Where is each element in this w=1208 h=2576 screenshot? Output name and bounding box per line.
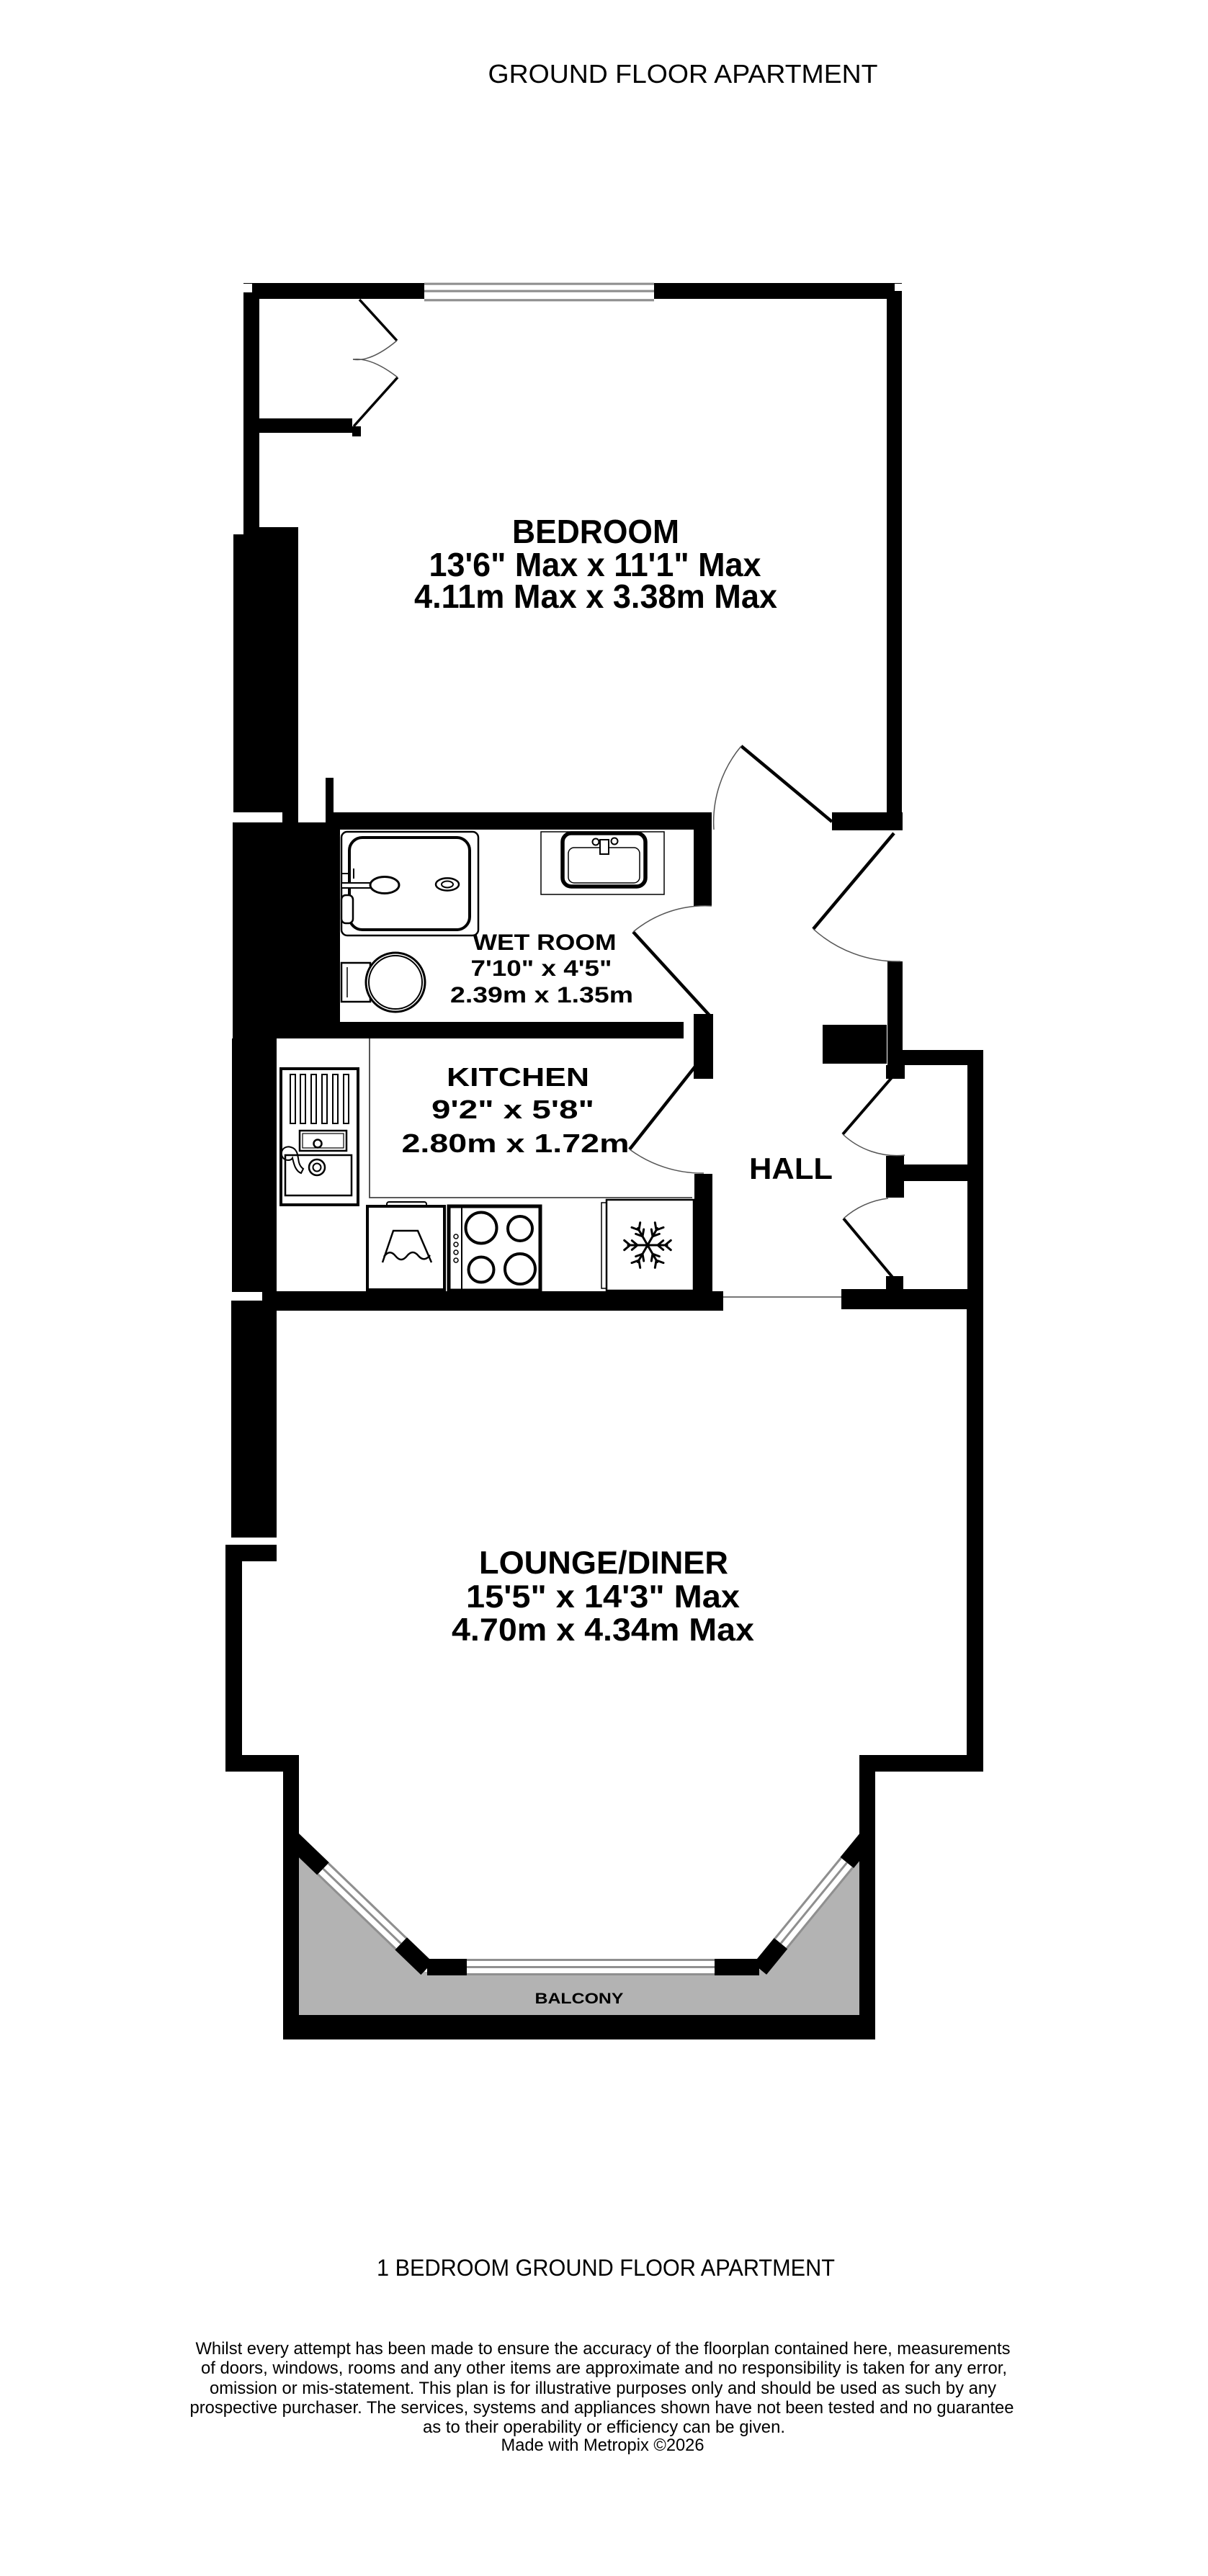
svg-text:4.11m Max x 3.38m Max: 4.11m Max x 3.38m Max xyxy=(414,578,777,615)
svg-text:of doors, windows, rooms and a: of doors, windows, rooms and any other i… xyxy=(201,2359,1007,2378)
svg-text:9'2" x 5'8": 9'2" x 5'8" xyxy=(431,1095,594,1124)
svg-text:1 BEDROOM GROUND FLOOR APARTME: 1 BEDROOM GROUND FLOOR APARTMENT xyxy=(377,2255,835,2281)
svg-text:HALL: HALL xyxy=(749,1152,833,1185)
svg-text:KITCHEN: KITCHEN xyxy=(447,1062,589,1092)
svg-text:prospective purchaser. The ser: prospective purchaser. The services, sys… xyxy=(190,2398,1014,2418)
svg-text:2.80m x 1.72m: 2.80m x 1.72m xyxy=(402,1128,630,1158)
svg-text:Whilst every attempt has been: Whilst every attempt has been made to en… xyxy=(196,2339,1011,2359)
svg-text:WET ROOM: WET ROOM xyxy=(473,929,617,955)
svg-text:7'10" x 4'5": 7'10" x 4'5" xyxy=(471,955,612,981)
svg-text:omission or mis-statement. Thi: omission or mis-statement. This plan is … xyxy=(210,2379,997,2398)
svg-text:LOUNGE/DINER: LOUNGE/DINER xyxy=(479,1545,728,1581)
svg-text:2.39m x 1.35m: 2.39m x 1.35m xyxy=(450,982,633,1007)
svg-text:4.70m x 4.34m Max: 4.70m x 4.34m Max xyxy=(452,1612,754,1648)
svg-text:as to their operability or eff: as to their operability or efficiency ca… xyxy=(423,2418,785,2437)
svg-text:GROUND FLOOR APARTMENT: GROUND FLOOR APARTMENT xyxy=(488,59,878,89)
svg-text:Made with Metropix ©2026: Made with Metropix ©2026 xyxy=(501,2436,704,2455)
svg-text:15'5" x 14'3" Max: 15'5" x 14'3" Max xyxy=(466,1579,740,1615)
svg-text:BALCONY: BALCONY xyxy=(535,1990,624,2007)
svg-text:BEDROOM: BEDROOM xyxy=(512,513,679,550)
